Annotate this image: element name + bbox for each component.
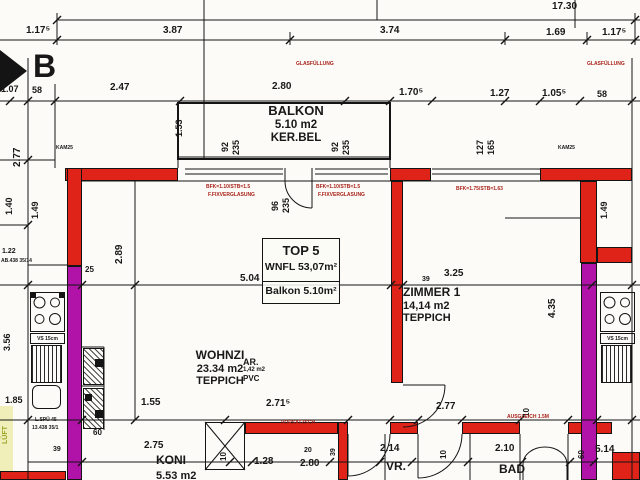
dim-label: LÜFT (2, 426, 9, 444)
shaft-box (205, 422, 245, 470)
dim-label: 3.56 (3, 333, 12, 351)
kitchen-fitting-icon (95, 359, 103, 367)
dim-label: 2.10 (495, 444, 514, 454)
unit-balkon-area: Balkon 5.10m² (263, 281, 339, 297)
room-label-bad: BAD (499, 463, 525, 477)
party-wall-left (67, 266, 82, 480)
dim-label: 2.14 (380, 444, 399, 454)
note-label: VORSATZSCH (281, 421, 315, 426)
dim-label: 1.22 (2, 248, 16, 255)
dim-label: 1.69 (546, 28, 565, 38)
dim-label: 20 (304, 447, 312, 454)
room-area: 1,42 m2 (243, 367, 265, 374)
wall-right (580, 181, 597, 263)
dim-label: 2.77 (13, 148, 23, 167)
note-label: F.FIXVERGLASUNG (208, 193, 255, 198)
dim-label: 96 (271, 201, 280, 211)
dim-label: 92 (221, 142, 230, 152)
dishwasher-right (601, 345, 632, 383)
unit-id: TOP 5 (263, 239, 339, 261)
dim-label: 2.80 (300, 459, 319, 469)
dim-label: 10 (220, 452, 228, 461)
note-label: F.FIXVERGLASUNG (318, 193, 365, 198)
note-label: BFK=1.10/STB=1.5 (206, 185, 250, 190)
room-label-abstellraum: AR. 1,42 m2 PVC (243, 357, 265, 383)
kitchen-fitting-icon (85, 394, 92, 401)
stove-right (600, 292, 635, 332)
dim-label: 1.28 (254, 457, 273, 467)
dim-label: 127 (476, 140, 485, 155)
room-area: 14,14 m2 (403, 300, 460, 313)
dim-label: 2.47 (110, 83, 129, 93)
unit-info-box: TOP 5 WNFL 53,07m² Balkon 5.10m² (262, 238, 340, 304)
dim-label: 2.89 (115, 245, 125, 264)
dim-label: KAM25 (558, 146, 575, 151)
dim-label: 39 (53, 446, 61, 453)
stove-knob-icon (59, 293, 64, 298)
dim-label: 5.14 (595, 445, 614, 455)
note-label: GLASFÜLLUNG (587, 62, 625, 67)
dim-label: 60 (93, 429, 102, 437)
dim-label: 3.25 (444, 269, 463, 279)
dim-label: 58 (597, 90, 607, 99)
room-floor: PVC (243, 374, 265, 383)
wall-koni (338, 422, 348, 480)
dim-label: 1.49 (600, 201, 609, 219)
dim-label: 1.05⁵ (542, 89, 566, 99)
dim-label: 58 (32, 86, 42, 95)
dim-label: 1.85 (5, 396, 23, 405)
note-label: GLASFÜLLUNG (296, 62, 334, 67)
dim-label: 235 (342, 140, 351, 155)
sink-left (32, 385, 61, 409)
dim-label: 17.30 (552, 2, 577, 12)
dim-label: 60 (578, 450, 586, 459)
room-label-zimmer1: ZIMMER 1 14,14 m2 TEPPICH (403, 286, 460, 325)
unit-wnfl: WNFL 53,07m² (263, 261, 339, 281)
wall-top-mid (390, 168, 431, 181)
dim-label: 1.40 (5, 197, 14, 215)
note-label: BFK=1.10/STB=1.5 (316, 185, 360, 190)
dim-label: 4.35 (548, 299, 558, 318)
wall-neighbor-bottom (0, 471, 66, 480)
wall-corner-right (612, 452, 640, 480)
note-label: AUSGLEICH 1.5M (507, 415, 549, 420)
dim-label: 3.74 (380, 26, 399, 36)
dim-label: 39 (330, 448, 337, 456)
dim-label: 1.07 (1, 85, 19, 94)
dim-label: KAM25 (56, 146, 73, 151)
dim-label: 2.71⁵ (266, 399, 290, 409)
dim-label: 5.04 (240, 274, 259, 284)
wall-bottom-2 (390, 422, 418, 434)
stove-left (30, 292, 65, 332)
dim-label: 1.55 (141, 398, 160, 408)
dim-label: 2.80 (272, 82, 291, 92)
dim-label: 1.70⁵ (399, 88, 423, 98)
room-floor: TEPPICH (403, 312, 460, 325)
wall-bottom-3 (462, 422, 520, 434)
dishwasher-left (31, 345, 62, 383)
room-label-vorraum: VR. (386, 460, 406, 474)
dim-label: 10 (440, 450, 448, 459)
room-label-koni: KONI (156, 454, 186, 468)
dim-label: 1.49 (31, 201, 40, 219)
dim-label: 165 (487, 140, 496, 155)
floor-plan: VS 15cm VS 15cm (0, 0, 640, 480)
section-marker-label: B (33, 50, 56, 82)
dim-label: 1.17⁵ (602, 28, 626, 38)
room-area: 5.10 m2 (248, 119, 344, 132)
vs-left: VS 15cm (30, 333, 65, 344)
dim-label: 3.87 (163, 26, 182, 36)
wall-top-right (540, 168, 632, 181)
dim-label: 1.17⁵ (26, 26, 50, 36)
room-area-koni: 5.53 m2 (156, 470, 196, 480)
dim-label: 235 (282, 198, 291, 213)
dim-label: 92 (331, 142, 340, 152)
wall-partition (391, 181, 403, 383)
wall-right-stub (597, 247, 632, 263)
dim-label: 25 (85, 266, 94, 274)
dim-label: 1.27 (490, 89, 509, 99)
dim-label: AB.438 35/14 (1, 259, 32, 264)
note-label: BFK=1.75/STB=1.63 (456, 187, 503, 192)
room-name: AR. (243, 357, 265, 367)
dim-label: 39 (422, 276, 430, 283)
dim-label: 2.75 (144, 441, 163, 451)
dim-label: L.SPÜ 45 (35, 418, 57, 423)
room-label-balkon: BALKON 5.10 m2 KER.BEL (248, 104, 344, 145)
dim-label: 2.77 (436, 402, 455, 412)
kitchen-fitting-icon (95, 410, 103, 418)
stove-knob-icon (31, 293, 36, 298)
room-name: BALKON (248, 104, 344, 119)
room-name: ZIMMER 1 (403, 286, 460, 300)
dim-label: 13.438 35/1 (32, 426, 58, 431)
wall-left (67, 168, 82, 266)
vs-right: VS 15cm (600, 333, 635, 344)
dim-label: 235 (232, 140, 241, 155)
dim-label: 1.53 (175, 119, 184, 137)
